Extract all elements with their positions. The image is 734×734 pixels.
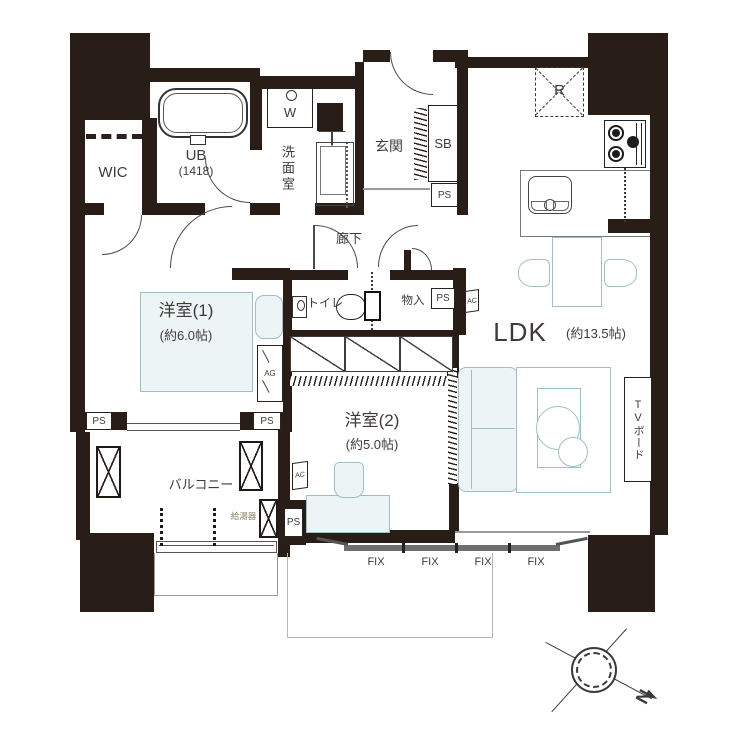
floor-plan: W R xyxy=(0,0,734,734)
ps-label: PS xyxy=(260,416,273,427)
bedside-table xyxy=(255,295,283,339)
wall-left-outer xyxy=(70,118,85,432)
shoe-box-label: SB xyxy=(434,136,451,151)
table-circle xyxy=(558,437,588,467)
closet-folding-door xyxy=(290,376,453,386)
balcony-dotted-2 xyxy=(213,508,216,546)
room-label-bedroom2-size: (約5.0帖) xyxy=(312,438,432,453)
entrance-mirror-box xyxy=(317,103,343,131)
fridge-space: R xyxy=(535,67,584,117)
entrance-door-arc xyxy=(390,52,433,95)
wic-door-arc xyxy=(102,215,142,255)
tv-board: TVボード xyxy=(624,377,652,482)
wall-toilet-top-left xyxy=(290,270,348,280)
room-label-corridor: 廊下 xyxy=(323,232,375,247)
room-label-ldk: LDK xyxy=(488,318,552,348)
ac-box: AC xyxy=(465,289,479,313)
tv-board-label: TVボード xyxy=(630,399,646,461)
balcony-apron xyxy=(154,553,278,596)
dining-chair xyxy=(604,259,637,287)
fix-label: FIX xyxy=(463,556,503,569)
ag-label: AG xyxy=(264,369,276,378)
bedroom1-window xyxy=(127,423,240,431)
room-label-entrance: 玄関 xyxy=(363,138,415,154)
fix-band-tick xyxy=(402,543,405,553)
ldk-floor-line xyxy=(455,531,590,533)
toilet-tank xyxy=(364,291,381,321)
compass-north-label: N xyxy=(628,680,658,713)
wall-right-outer xyxy=(650,115,668,535)
ps-label: PS xyxy=(92,416,105,427)
wall-corridor-bottom xyxy=(232,268,290,280)
room-label-bedroom2: 洋室(2) xyxy=(312,411,432,431)
shoebox-folding-door xyxy=(414,108,427,180)
pillar-marker xyxy=(96,446,121,498)
balcony-dotted-1 xyxy=(160,508,163,546)
ac-label: AC xyxy=(295,471,305,479)
wall-bath-top xyxy=(150,68,260,82)
entrance-step-line xyxy=(363,188,430,190)
wall-entry-top-left xyxy=(363,50,390,62)
room-label-storage: 物入 xyxy=(390,295,436,308)
sofa xyxy=(458,367,518,492)
room-label-wic: WIC xyxy=(84,164,142,181)
dining-table xyxy=(552,237,602,307)
ps-box: PS xyxy=(431,183,458,207)
wall-wic-divider xyxy=(142,118,157,203)
desk-chair xyxy=(334,462,364,498)
ps-label: PS xyxy=(436,293,449,304)
wall-top-left-block xyxy=(70,33,150,120)
closet-section xyxy=(345,336,400,372)
wall-north-seg3 xyxy=(250,203,280,215)
wall-north-seg1 xyxy=(84,203,104,215)
wic-hanger-pipe xyxy=(86,134,142,139)
ps-box: PS xyxy=(86,412,112,430)
room-label-ub-size: (1418) xyxy=(160,165,232,179)
room-label-ub: UB xyxy=(160,147,232,164)
balcony-slab xyxy=(156,541,277,553)
shoe-box: SB xyxy=(428,105,458,182)
fix-band-tick xyxy=(455,543,458,553)
wall-bath-right xyxy=(250,80,262,150)
bedroom1-door-arc xyxy=(170,206,232,268)
wall-partition-low xyxy=(449,483,459,533)
room-label-toilet: トイレ xyxy=(299,297,351,311)
compass-icon: N xyxy=(530,618,690,728)
stove-icon xyxy=(604,120,646,168)
wall-top-right-block xyxy=(588,33,668,115)
wall-north-seg2 xyxy=(142,203,205,215)
fridge-label: R xyxy=(536,82,583,99)
closet-section xyxy=(400,336,453,372)
compass-inner-ring xyxy=(576,652,612,688)
wall-bottom-left-block xyxy=(80,533,154,612)
ps-box: PS xyxy=(253,412,281,430)
fix-label: FIX xyxy=(410,556,450,569)
fix-label: FIX xyxy=(516,556,556,569)
room-label-ldk-size: (約13.5帖) xyxy=(550,327,642,342)
bathtub-icon xyxy=(158,88,248,138)
room-partition-screen xyxy=(448,368,457,484)
water-heater-marker xyxy=(259,499,278,538)
washer-faucet xyxy=(286,90,297,101)
ac-box: AC xyxy=(292,461,308,490)
ps-box: PS xyxy=(284,508,303,537)
closet-section xyxy=(290,336,345,372)
fix-band-tick xyxy=(508,543,511,553)
ps-label: PS xyxy=(287,517,300,528)
fix-band-slant xyxy=(556,537,588,546)
wall-toilet-top-right xyxy=(390,270,453,280)
ac-label: AC xyxy=(467,297,477,305)
washer-label: W xyxy=(284,106,296,121)
water-heater-label: 給湯器 xyxy=(228,512,259,522)
washroom-door-leaf xyxy=(313,225,315,269)
fix-label: FIX xyxy=(356,556,396,569)
desk xyxy=(306,495,390,533)
bathtub-tab xyxy=(190,135,206,145)
room-label-balcony: バルコニー xyxy=(146,478,256,493)
wall-entry-top-right xyxy=(433,50,457,62)
room-label-bedroom1-size: (約6.0帖) xyxy=(126,329,246,344)
wall-shoebox-east xyxy=(457,62,468,215)
dining-chair xyxy=(518,259,550,287)
wall-bottom-right-block xyxy=(588,535,655,612)
wall-balcony-left xyxy=(76,432,90,540)
entrance-closet xyxy=(316,142,354,206)
fix-window-band xyxy=(344,545,560,551)
storage-door-arc xyxy=(412,248,432,270)
room-label-washroom: 洗面室 xyxy=(276,138,294,200)
kitchen-sink-icon xyxy=(528,176,572,214)
ag-box: AG xyxy=(257,345,283,402)
washer-icon: W xyxy=(267,88,313,128)
room-label-bedroom1: 洋室(1) xyxy=(126,301,246,321)
ps-label: PS xyxy=(438,190,451,201)
